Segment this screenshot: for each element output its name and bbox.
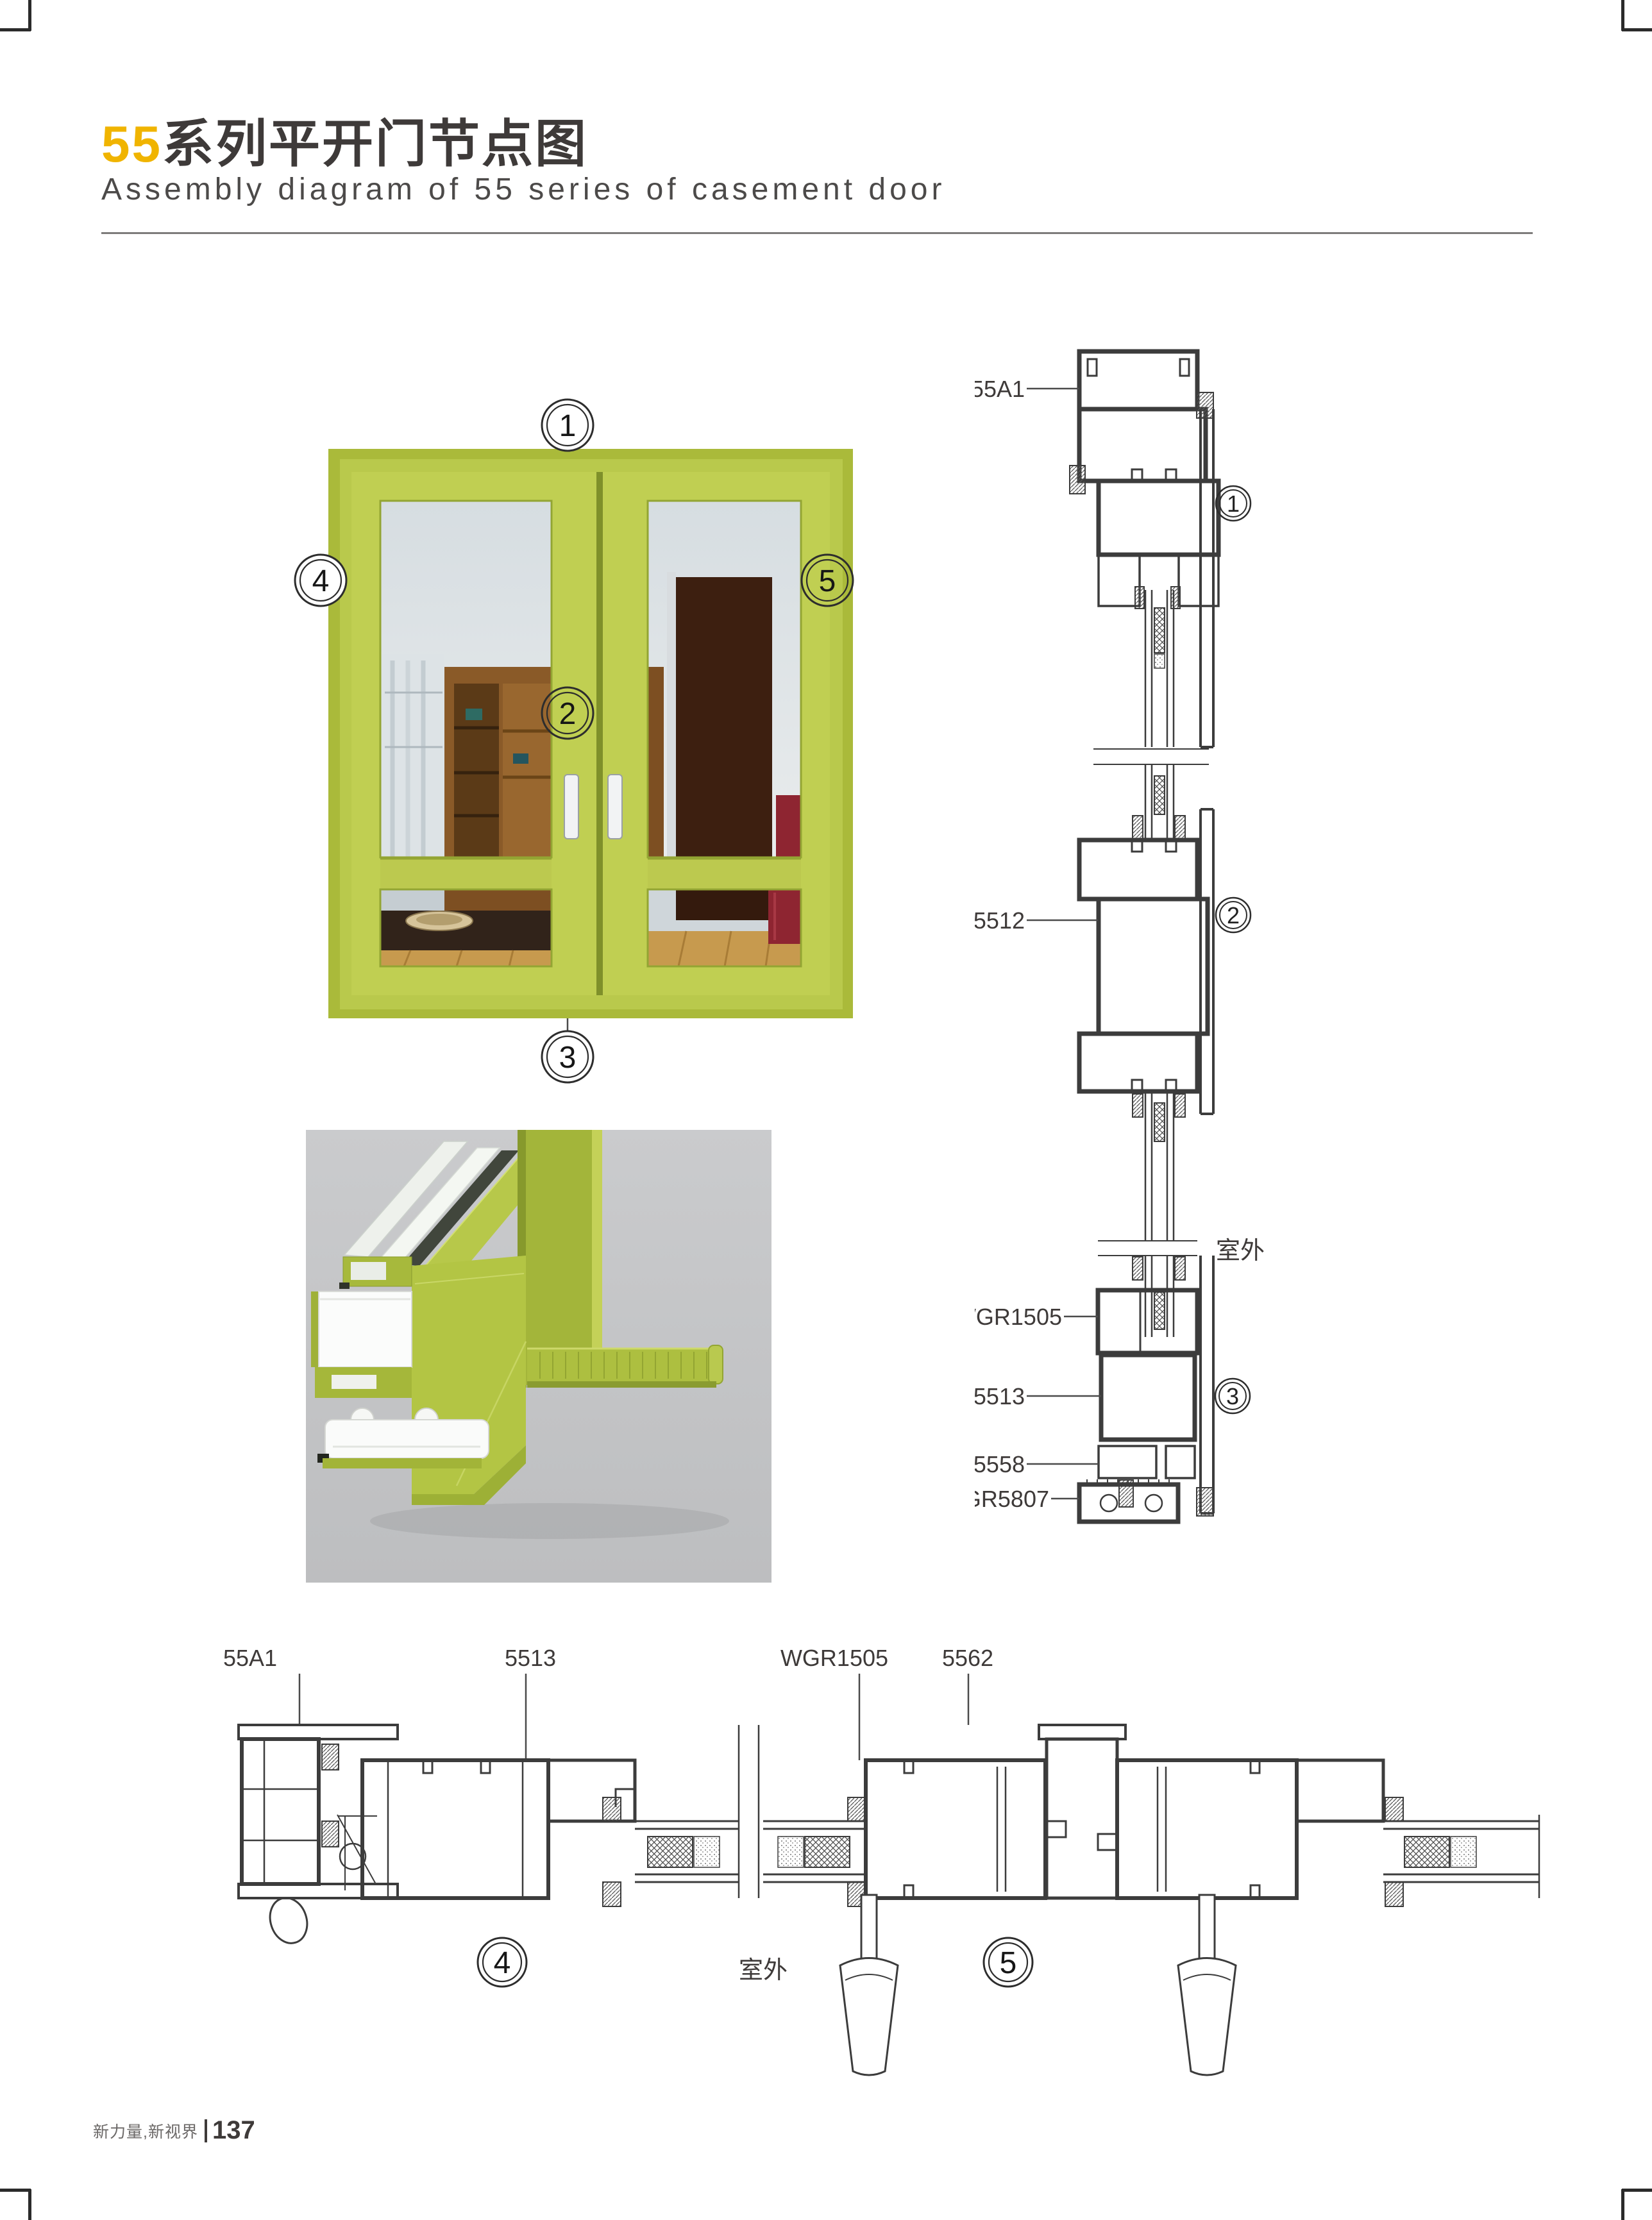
callout-5-number: 5 [819, 564, 836, 598]
hsec-label-5513: 5513 [505, 1645, 556, 1671]
vsec-outdoor-label: 室外 [1216, 1238, 1265, 1265]
door-photo-figure: 1 4 5 2 3 [282, 385, 872, 1103]
catalog-page: 55系列平开门节点图 Assembly diagram of 55 series… [0, 0, 1652, 2220]
hsec-detail-5-number: 5 [1000, 1946, 1017, 1980]
vsec-label-5558: 5558 [975, 1451, 1025, 1477]
vsec-detail-3-profiles [1079, 1256, 1213, 1522]
left-door-handle [564, 775, 578, 839]
vsec-outdoor-break [1098, 1241, 1197, 1256]
render-sill [527, 1345, 723, 1388]
hsec-center-break [739, 1725, 759, 1898]
crop-mark-bottom-left-v [28, 2189, 31, 2220]
vsec-detail-2-profiles [1079, 764, 1213, 1241]
sofa [768, 889, 801, 944]
vsec-detail-3-number: 3 [1226, 1383, 1239, 1409]
hsec-label-55A1: 55A1 [223, 1645, 277, 1671]
horizontal-section-figure: 55A1 5513 WGR1505 5562 [192, 1629, 1652, 2116]
footer-divider [205, 2119, 207, 2142]
vsec-detail-1-profiles [1070, 351, 1218, 764]
profile-render-figure [306, 1130, 771, 1583]
crop-mark-top-right-h [1622, 28, 1652, 31]
page-subtitle: Assembly diagram of 55 series of casemen… [101, 172, 945, 207]
footer-page-number: 137 [212, 2116, 255, 2145]
callout-3: 3 [542, 1031, 593, 1082]
crop-mark-top-left-h [0, 28, 31, 31]
vsec-leaders [1027, 389, 1101, 1499]
vsec-detail-2-number: 2 [1227, 902, 1240, 929]
page-title: 55系列平开门节点图 [101, 103, 588, 177]
door-handle-plan-left [840, 1895, 898, 2075]
crop-mark-bottom-left-h [0, 2189, 31, 2192]
hsec-detail-4-profiles [239, 1725, 739, 1948]
left-glass-lower [380, 889, 552, 966]
vsec-label-WGR1505: WGR1505 [975, 1304, 1062, 1330]
vsec-label-5513: 5513 [975, 1383, 1025, 1409]
crop-mark-top-right-v [1621, 0, 1624, 31]
title-text: 系列平开门节点图 [162, 115, 588, 172]
callout-1-number: 1 [559, 409, 577, 443]
meeting-gap [596, 472, 603, 995]
title-series-number: 55 [101, 115, 162, 172]
callout-3-number: 3 [559, 1041, 577, 1075]
right-door-handle [608, 775, 622, 839]
vsec-label-GR5807: GR5807 [975, 1486, 1049, 1512]
callout-1: 1 [542, 399, 593, 451]
hsec-leaders [299, 1674, 968, 1760]
callout-4-number: 4 [312, 564, 330, 598]
hsec-detail-5-profiles [763, 1725, 1539, 1906]
interior-door [676, 577, 772, 857]
hsec-detail-4-number: 4 [494, 1946, 511, 1980]
hsec-label-5562: 5562 [942, 1645, 993, 1671]
crop-mark-top-left-v [28, 0, 31, 31]
door-photo [328, 449, 853, 1018]
footer-brand: 新力量,新视界 [93, 2119, 198, 2142]
left-glass-upper [380, 501, 552, 857]
right-glass-lower [648, 889, 801, 966]
crop-mark-bottom-right-h [1622, 2189, 1652, 2192]
right-transom [648, 857, 801, 889]
hsec-label-WGR1505: WGR1505 [780, 1645, 888, 1671]
callout-2-number: 2 [559, 697, 577, 731]
vertical-section-figure: 55A1 5512 WGR1505 5513 5558 GR5807 室外 1 … [975, 333, 1552, 1552]
callout-4: 4 [295, 555, 346, 606]
vsec-label-55A1: 55A1 [975, 376, 1025, 402]
header-rule [101, 232, 1533, 234]
hsec-outdoor-label: 室外 [739, 1957, 788, 1984]
vsec-detail-1-number: 1 [1227, 491, 1240, 517]
left-transom [380, 857, 552, 889]
crop-mark-bottom-right-v [1621, 2189, 1624, 2220]
vsec-detail-circles: 1 2 3 [1215, 486, 1251, 1413]
door-handle-plan-right [1178, 1895, 1236, 2075]
vsec-label-5512: 5512 [975, 907, 1025, 934]
page-footer: 新力量,新视界 137 [93, 2116, 255, 2145]
right-glass-upper [648, 501, 801, 857]
